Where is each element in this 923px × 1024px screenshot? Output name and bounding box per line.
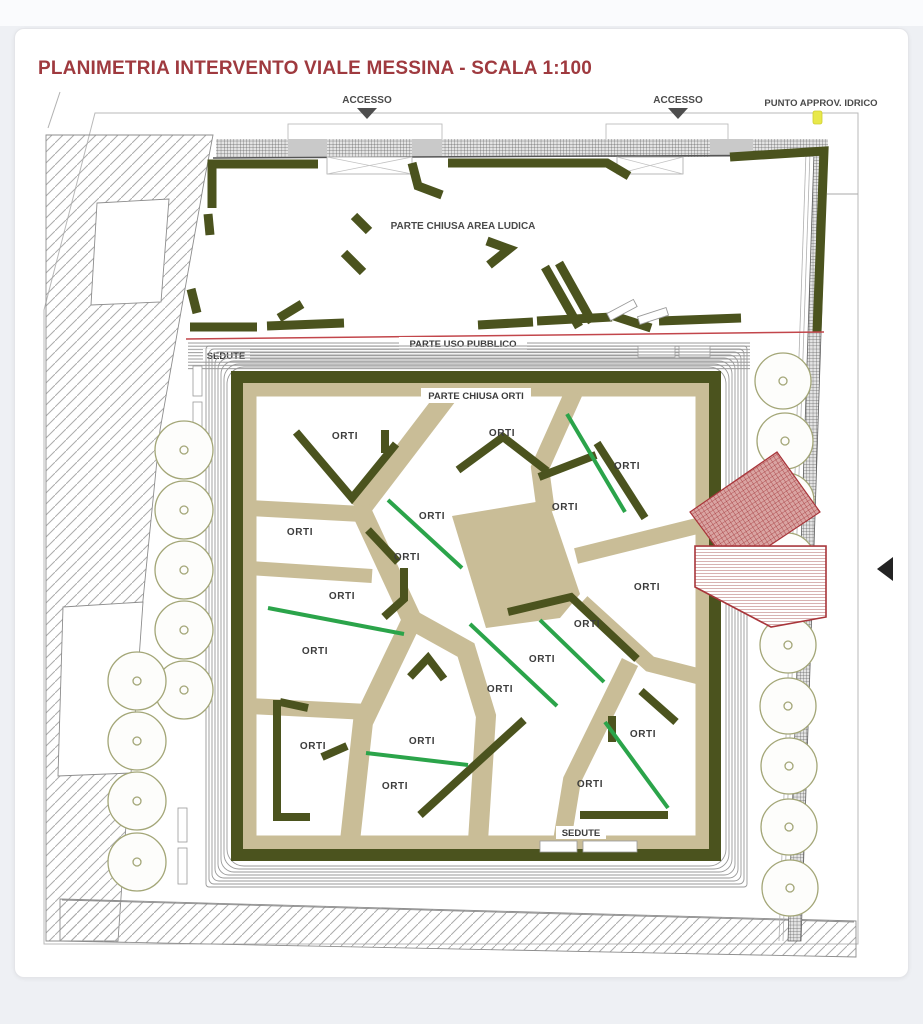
hedge-segment [191, 289, 197, 313]
fence-segment [216, 139, 288, 157]
tree-icon [155, 541, 213, 599]
carousel-prev-icon[interactable] [877, 557, 893, 581]
orti-label: ORTI [614, 461, 640, 472]
tree-icon [155, 481, 213, 539]
orti-label: ORTI [332, 431, 358, 442]
tree-icon [155, 421, 213, 479]
orti-label: ORTI [409, 736, 435, 747]
orti-label: ORTI [529, 654, 555, 665]
tree-icon [762, 860, 818, 916]
orti-label: ORTI [574, 619, 600, 630]
hatch-band-bottom [60, 899, 856, 957]
hedge-segment [354, 216, 369, 231]
orti-label: ORTI [302, 646, 328, 657]
chiusa-orti-label: PARTE CHIUSA ORTI [428, 391, 524, 402]
orti-label: ORTI [487, 684, 513, 695]
orti-label: ORTI [287, 527, 313, 538]
tree-icon [108, 652, 166, 710]
tree-icon [755, 353, 811, 409]
fence-segment [327, 139, 412, 157]
tree-icon [155, 601, 213, 659]
orti-label: ORTI [552, 502, 578, 513]
area-ludica-label: PARTE CHIUSA AREA LUDICA [391, 221, 536, 232]
orti-label: ORTI [300, 741, 326, 752]
tree-icon [108, 712, 166, 770]
gate-swing-box [327, 157, 412, 174]
accesso-label: ACCESSO [342, 95, 392, 106]
accesso-label: ACCESSO [653, 95, 703, 106]
area-ludica-hedges [190, 151, 824, 332]
hedge-segment [212, 164, 318, 208]
gate-opening [412, 139, 442, 157]
boundary-tick [48, 92, 60, 128]
orti-label: ORTI [630, 729, 656, 740]
orti-label: ORTI [329, 591, 355, 602]
uso-pubblico-label: PARTE USO PUBBLICO [410, 339, 517, 350]
water-point-icon [813, 111, 822, 124]
hedge-segment [448, 163, 629, 176]
garden-path [249, 508, 362, 514]
orti-label: ORTI [577, 779, 603, 790]
fence-segment [442, 139, 710, 157]
pergola-outline [606, 124, 728, 140]
bench [193, 366, 202, 396]
building-footprint [91, 199, 169, 305]
hedge-segment [267, 323, 344, 326]
tree-icon [761, 738, 817, 794]
hedge-segment [208, 214, 210, 235]
sedute-label-bottom: SEDUTE [562, 828, 601, 839]
orti-label: ORTI [382, 781, 408, 792]
gate-opening [288, 139, 327, 157]
tree-icon [761, 799, 817, 855]
orti-label: ORTI [394, 552, 420, 563]
bench [178, 848, 187, 884]
hedge-segment [478, 322, 533, 325]
top-annotations: ACCESSO ACCESSO PUNTO APPROV. IDRICO [342, 95, 877, 124]
hedge-segment [659, 318, 741, 321]
bench [583, 841, 637, 852]
hedge-segment [412, 163, 442, 195]
tree-icon [108, 833, 166, 891]
tree-icon [760, 678, 816, 734]
tree-icon [108, 772, 166, 830]
hedge-segment [487, 241, 509, 265]
garden-path [249, 568, 372, 576]
orti-label: ORTI [489, 428, 515, 439]
orti-label: ORTI [419, 511, 445, 522]
idrico-label: PUNTO APPROV. IDRICO [764, 98, 877, 109]
hedge-segment [344, 253, 363, 272]
bench [540, 841, 577, 852]
pergola-outline [288, 124, 442, 140]
hedge-segment [279, 304, 302, 318]
orti-label: ORTI [634, 582, 660, 593]
bench [178, 808, 187, 842]
plan-drawing: PARTE CHIUSA AREA LUDICA PARTE USO PUBBL… [0, 0, 923, 1024]
